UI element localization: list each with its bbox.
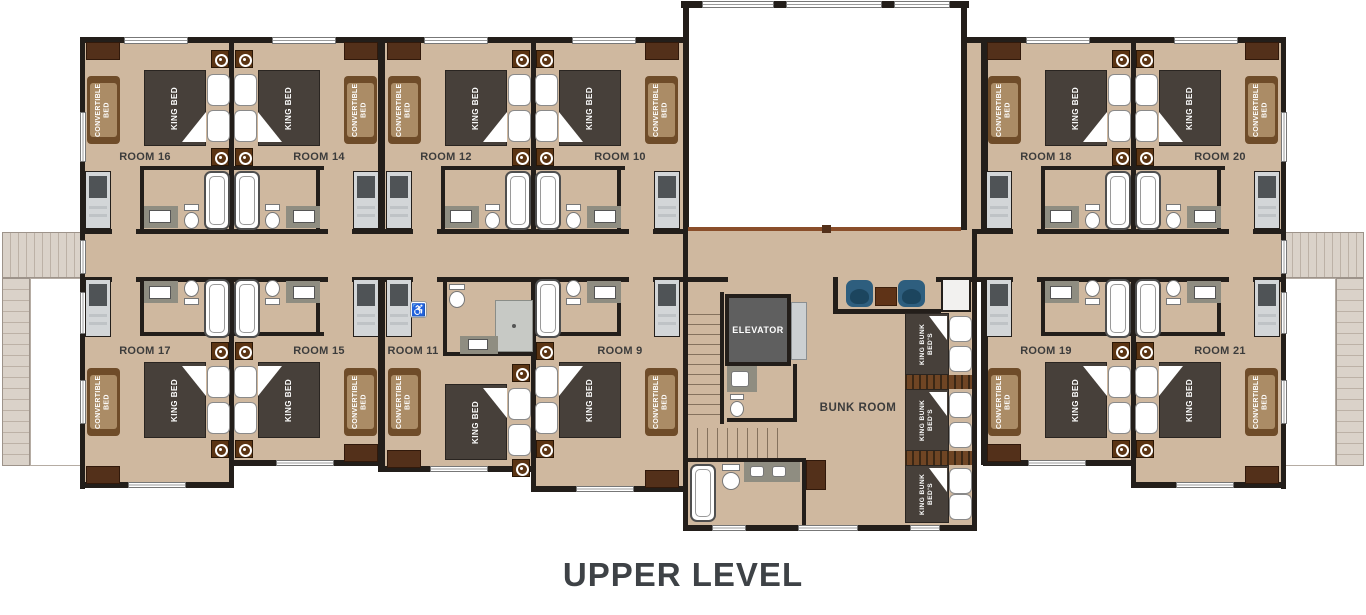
convertible-bed-label: CONVERTIBLE BED [645,76,678,144]
cabinet [806,460,826,490]
wall [378,37,385,229]
closet [654,279,680,337]
wall [683,277,728,282]
nightstand [1112,342,1130,360]
convertible-bed: CONVERTIBLE BED [388,76,421,144]
closet-item [1258,176,1276,198]
toilet [722,472,740,490]
bathtub [1105,279,1131,338]
closet-shelf [390,314,408,317]
toilet [1085,280,1100,297]
window [910,525,940,531]
lobby-toilet-tank [730,394,744,400]
room-label: ROOM 19 [1001,345,1091,358]
closet [1254,171,1280,229]
toilet [566,280,581,297]
closet-item [990,176,1008,198]
door-opening [1013,277,1037,282]
closet-shelf [658,314,676,317]
convertible-bed: CONVERTIBLE BED [1245,76,1278,144]
floor-title: UPPER LEVEL [563,556,803,594]
closet [85,171,111,229]
closet-shelf [990,314,1008,317]
toilet-tank [566,298,581,305]
deck-opening [30,278,82,466]
railing-post [822,225,831,233]
toilet-tank [1085,298,1100,305]
pillow [949,422,972,448]
door-opening [629,277,653,282]
dresser [387,42,421,60]
tv-monitor [450,210,472,223]
elevator: ELEVATOR [725,294,791,366]
deck-landing [1284,232,1364,278]
pillow [949,346,972,372]
nightstand [1112,440,1130,458]
pillow [949,494,972,520]
toilet-tank [485,204,500,211]
window [424,37,488,44]
nightstand [1136,440,1154,458]
nightstand [512,50,530,68]
bathtub [505,171,531,230]
door-opening [413,229,437,234]
window [798,525,858,531]
toilet-tank [265,298,280,305]
wheelchair-glyph: ♿ [411,303,426,317]
convertible-bed-label: CONVERTIBLE BED [988,76,1021,144]
nightstand [1136,342,1154,360]
pillow [1135,402,1158,434]
closet-shelf [357,214,375,217]
convertible-bed: CONVERTIBLE BED [344,76,377,144]
room-label: ROOM 20 [1175,151,1265,164]
window [128,482,186,488]
tv-monitor [1050,210,1072,223]
toilet [1166,280,1181,297]
bathroom [1133,277,1225,341]
tv-monitor [594,286,616,299]
convertible-bed-label: CONVERTIBLE BED [1245,368,1278,436]
wall [972,229,977,531]
wall [833,277,838,314]
toilet [1085,212,1100,229]
door-opening [413,277,437,282]
floor-plan: ELEVATOR BUNK ROOM ♿ UPPER LEVEL CONVERT… [0,0,1366,615]
dresser [1245,42,1279,60]
sink [772,466,786,477]
window [894,1,950,8]
pillow [1135,366,1158,398]
closet [986,171,1012,229]
window [272,37,336,44]
closet-item [390,284,408,306]
convertible-bed: CONVERTIBLE BED [388,368,421,436]
pillow [1108,110,1131,142]
bathroom [1133,168,1225,232]
dresser [987,444,1021,462]
nightstand [512,459,530,477]
nightstand [512,148,530,166]
room-label: ROOM 17 [100,345,190,358]
pillow [535,402,558,434]
nightstand [536,342,554,360]
closet-shelf [89,214,107,217]
dresser [86,42,120,60]
wall [793,364,797,422]
nightstand [211,440,229,458]
accessibility-icon: ♿ [410,301,427,318]
pillow [1135,110,1158,142]
sink [750,466,764,477]
pillow [207,366,230,398]
room-label: ROOM 15 [274,345,364,358]
bathtub [1135,171,1161,230]
pillow [1108,402,1131,434]
room-label: ROOM 9 [575,345,665,358]
closet-shelf [89,322,107,325]
door-opening [328,277,352,282]
window [124,37,188,44]
window [430,466,488,472]
closet-shelf [357,206,375,209]
pillow [1135,74,1158,106]
window [786,1,882,8]
nightstand [1112,50,1130,68]
bunk-ladder [905,375,972,389]
room-label: ROOM 21 [1175,345,1265,358]
bathroom [232,168,324,232]
closet-shelf [390,214,408,217]
side-table [875,287,897,306]
closet-shelf [990,322,1008,325]
closet-item [658,176,676,198]
pillow [234,110,257,142]
pillow [234,402,257,434]
bunk-room-label: BUNK ROOM [800,402,916,416]
dresser [86,466,120,484]
toilet-tank [722,464,740,471]
tv-monitor [149,286,171,299]
closet-item [990,284,1008,306]
window [80,240,86,274]
closet [85,279,111,337]
room-label: ROOM 16 [100,151,190,164]
toilet-tank [265,204,280,211]
bathtub [204,279,230,338]
pillow [508,388,531,420]
nightstand [1136,50,1154,68]
bathroom [533,168,625,232]
staircase-lower-flight [688,428,778,458]
convertible-bed-label: CONVERTIBLE BED [645,368,678,436]
toilet-tank [566,204,581,211]
bunk-room-closet [941,278,971,312]
closet-item [89,284,107,306]
nightstand [536,148,554,166]
closet-shelf [357,314,375,317]
bathroom [140,168,232,232]
open-to-below [688,8,961,229]
toilet-tank [1166,298,1181,305]
convertible-bed: CONVERTIBLE BED [87,76,120,144]
bathroom [232,277,324,341]
dresser [987,42,1021,60]
elevator-label: ELEVATOR [732,325,784,335]
pillow [207,402,230,434]
closet-shelf [390,322,408,325]
bathtub [204,171,230,230]
convertible-bed-label: CONVERTIBLE BED [344,76,377,144]
bathtub [1105,171,1131,230]
window [1281,112,1287,162]
dresser [1245,466,1279,484]
pillow [207,74,230,106]
bathtub [535,279,561,338]
convertible-bed-label: CONVERTIBLE BED [87,368,120,436]
door-opening [1013,229,1037,234]
pillow [234,366,257,398]
closet-shelf [658,214,676,217]
closet [1254,279,1280,337]
toilet [449,291,465,308]
tv-monitor [293,286,315,299]
toilet-tank [184,204,199,211]
window [572,37,636,44]
deck-landing [2,232,82,278]
window [712,525,746,531]
room-label: ROOM 18 [1001,151,1091,164]
convertible-bed-label: CONVERTIBLE BED [988,368,1021,436]
dresser [344,42,378,60]
pillow [508,110,531,142]
door-opening [629,229,653,234]
toilet-tank [449,284,465,290]
door-opening [1229,229,1253,234]
bunk-ladder [905,451,972,465]
tv-monitor [149,210,171,223]
window [1026,37,1090,44]
closet-shelf [658,322,676,325]
tv-monitor [1050,286,1072,299]
nightstand [235,342,253,360]
door-opening [112,229,136,234]
toilet [184,280,199,297]
bathtub [690,464,716,522]
toilet [1166,212,1181,229]
bathroom [441,168,533,232]
bathtub [234,171,260,230]
window [1028,460,1086,466]
closet-shelf [658,206,676,209]
toilet [265,212,280,229]
elevator-door [791,302,807,360]
convertible-bed: CONVERTIBLE BED [645,368,678,436]
convertible-bed: CONVERTIBLE BED [645,76,678,144]
closet-shelf [1258,314,1276,317]
convertible-bed-label: CONVERTIBLE BED [388,368,421,436]
bathroom [140,277,232,341]
room-label: ROOM 12 [401,151,491,164]
toilet-tank [184,298,199,305]
convertible-bed-label: CONVERTIBLE BED [344,368,377,436]
toilet [184,212,199,229]
toilet-tank [1166,204,1181,211]
closet-shelf [1258,322,1276,325]
closet-item [658,284,676,306]
tv-monitor [1194,210,1216,223]
room-label: ROOM 14 [274,151,364,164]
bathroom [1041,277,1133,341]
nightstand [235,440,253,458]
toilet-tank [1085,204,1100,211]
pillow [535,110,558,142]
closet [353,171,379,229]
deck-opening [1284,278,1336,466]
convertible-bed: CONVERTIBLE BED [1245,368,1278,436]
nightstand [211,342,229,360]
pillow [535,366,558,398]
closet-shelf [1258,214,1276,217]
lobby-toilet [730,401,744,417]
tv-monitor [594,210,616,223]
window [576,486,634,492]
pillow [234,74,257,106]
closet-shelf [990,214,1008,217]
bathroom [1041,168,1133,232]
closet-shelf [1258,206,1276,209]
pillow [949,392,972,418]
dresser [645,42,679,60]
dresser [645,470,679,488]
lounge-chair [846,280,873,307]
tv-monitor [468,339,488,350]
window [1176,482,1234,488]
nightstand [1112,148,1130,166]
window [1281,380,1287,424]
bathtub [535,171,561,230]
door-opening [112,277,136,282]
window [1174,37,1238,44]
tv-monitor [1194,286,1216,299]
window [1281,292,1287,334]
door-opening [328,229,352,234]
bathtub [234,279,260,338]
closet [353,279,379,337]
roll-in-shower [495,300,533,352]
closet-item [390,176,408,198]
toilet [566,212,581,229]
wall [720,292,724,424]
bathtub [1135,279,1161,338]
lounge-chair [898,280,925,307]
closet-shelf [89,206,107,209]
dresser [344,444,378,462]
wall [683,2,689,230]
door-opening [1229,277,1253,282]
toilet [485,212,500,229]
closet-item [357,176,375,198]
window [276,460,334,466]
dresser [387,450,421,468]
nightstand [211,50,229,68]
pillow [1108,74,1131,106]
closet [386,171,412,229]
nightstand [512,364,530,382]
window [702,1,774,8]
pillow [535,74,558,106]
bathroom [533,277,625,341]
closet-item [89,176,107,198]
window [80,112,86,162]
nightstand [211,148,229,166]
room-label: ROOM 10 [575,151,665,164]
window [1281,240,1287,274]
wall [727,418,797,422]
nightstand [536,440,554,458]
convertible-bed: CONVERTIBLE BED [988,76,1021,144]
pillow [1108,366,1131,398]
wall [961,2,967,230]
closet-item [357,284,375,306]
nightstand [536,50,554,68]
lobby-sink [731,371,749,387]
staircase-upper-flight [688,308,720,424]
pillow [508,424,531,456]
closet-shelf [357,322,375,325]
wall [378,277,385,472]
convertible-bed-label: CONVERTIBLE BED [388,76,421,144]
convertible-bed-label: CONVERTIBLE BED [87,76,120,144]
convertible-bed-label: CONVERTIBLE BED [1245,76,1278,144]
exterior-stairs [2,278,30,466]
pillow [949,468,972,494]
wall [229,460,234,488]
pillow [949,316,972,342]
toilet [265,280,280,297]
pillow [207,110,230,142]
nightstand [1136,148,1154,166]
room-label: ROOM 11 [368,345,458,358]
pillow [508,74,531,106]
exterior-stairs [1336,278,1364,466]
window [80,380,86,424]
tv-monitor [293,210,315,223]
closet [386,279,412,337]
convertible-bed: CONVERTIBLE BED [344,368,377,436]
closet-item [1258,284,1276,306]
closet-shelf [990,206,1008,209]
closet [986,279,1012,337]
closet [654,171,680,229]
nightstand [235,148,253,166]
convertible-bed: CONVERTIBLE BED [87,368,120,436]
closet-shelf [89,314,107,317]
closet-shelf [390,206,408,209]
convertible-bed: CONVERTIBLE BED [988,368,1021,436]
nightstand [235,50,253,68]
